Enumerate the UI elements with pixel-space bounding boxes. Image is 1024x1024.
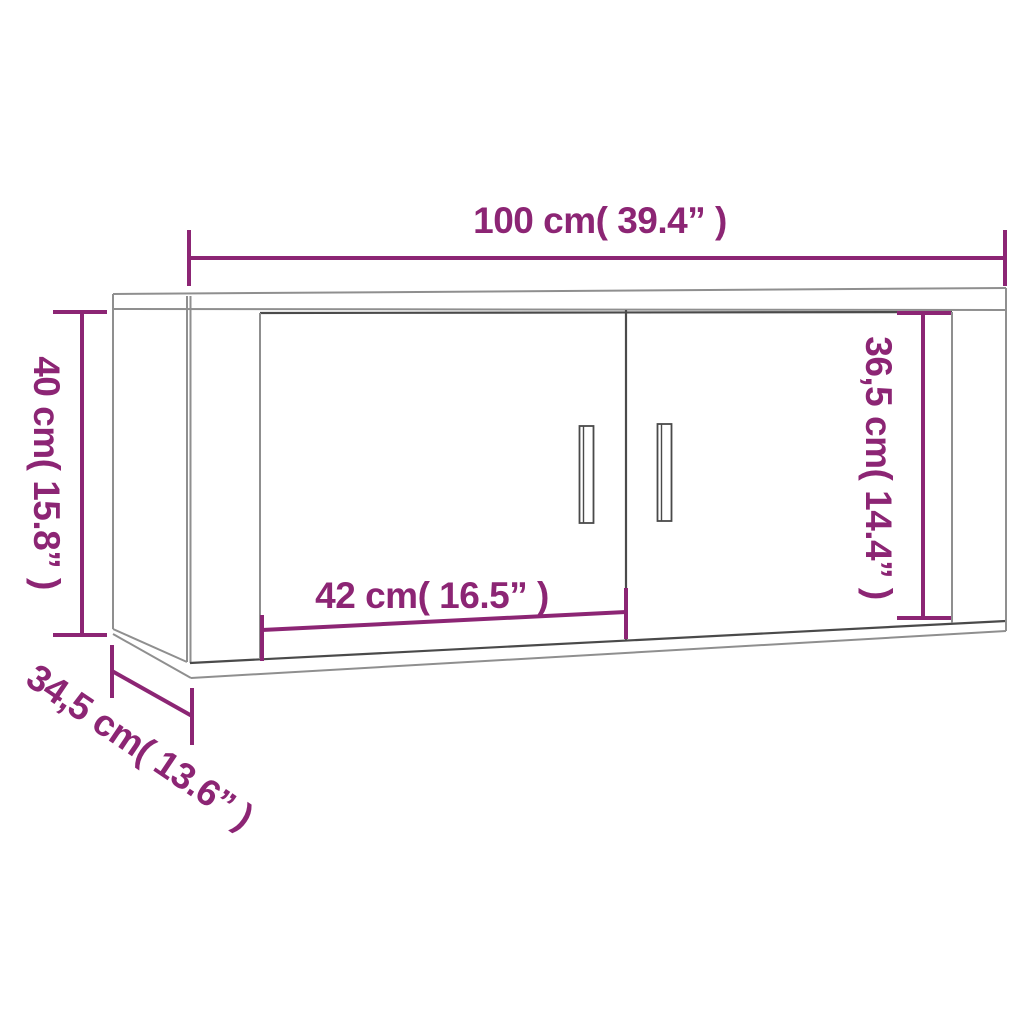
left-door-handle-icon (580, 426, 594, 523)
width-dimension-label: 100 cm( 39.4” ) (473, 200, 727, 241)
cabinet-top-edge (113, 288, 1006, 294)
height-dimension-label: 40 cm( 15.8” ) (26, 356, 67, 590)
depth-dimension-line (112, 671, 192, 716)
cabinet-bottom-panel-lower-edge (191, 631, 1006, 678)
right-door-handle-icon (658, 424, 672, 521)
dimension-diagram: 100 cm( 39.4” ) 40 cm( 15.8” ) 36,5 cm( … (0, 0, 1024, 1024)
cabinet-bottom-panel-left-edge (113, 634, 191, 678)
dimension-door-width: 42 cm( 16.5” ) (262, 575, 626, 661)
cabinet-top-band-bottom-edge (113, 309, 1006, 310)
door-width-dimension-label: 42 cm( 16.5” ) (315, 575, 549, 616)
dimension-depth: 34,5 cm( 13.6” ) (19, 645, 260, 837)
door-top-edge (260, 312, 952, 313)
dimension-width: 100 cm( 39.4” ) (189, 200, 1005, 286)
door-height-dimension-label: 36,5 cm( 14.4” ) (858, 336, 899, 599)
dimension-door-height: 36,5 cm( 14.4” ) (858, 313, 951, 618)
cabinet-left-side-bottom-edge (113, 629, 187, 662)
dimension-annotations: 100 cm( 39.4” ) 40 cm( 15.8” ) 36,5 cm( … (19, 200, 1005, 837)
depth-dimension-label: 34,5 cm( 13.6” ) (19, 656, 260, 837)
dimension-height: 40 cm( 15.8” ) (26, 312, 107, 635)
